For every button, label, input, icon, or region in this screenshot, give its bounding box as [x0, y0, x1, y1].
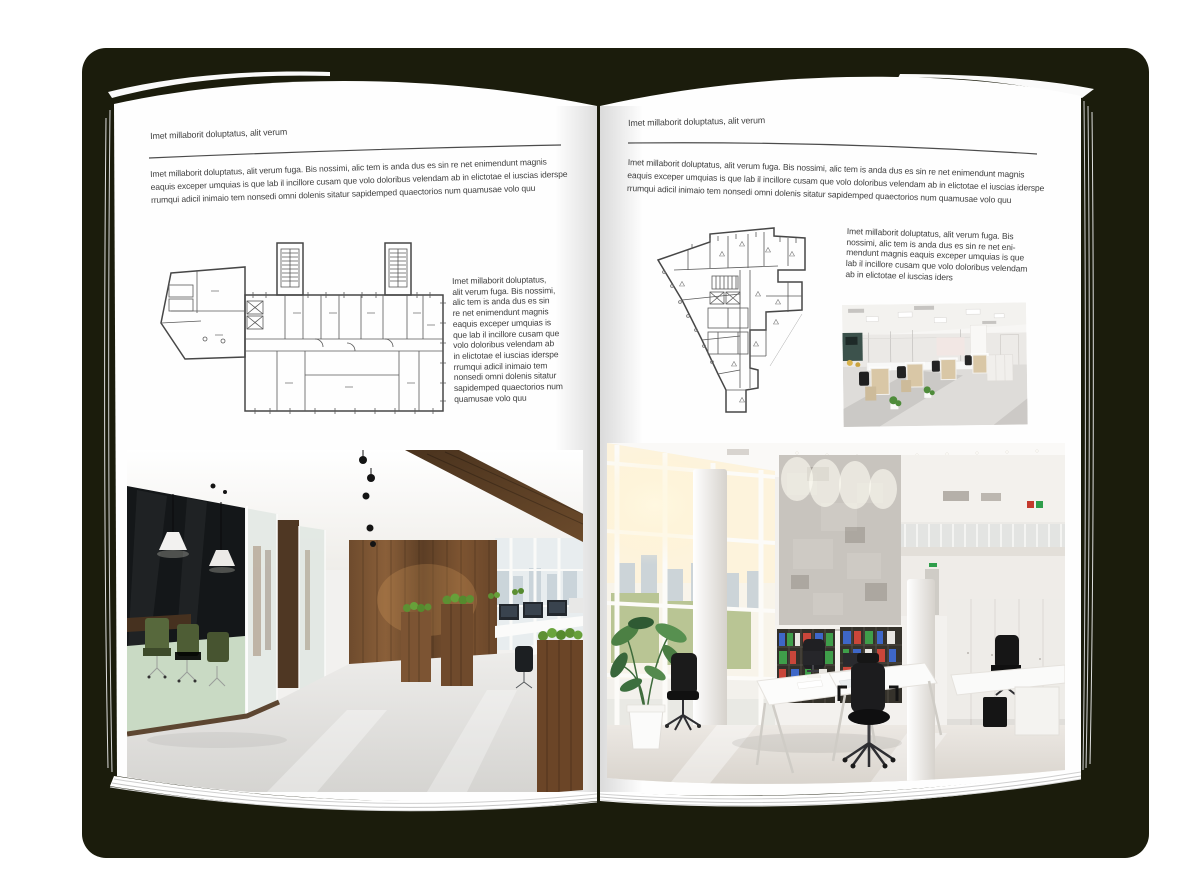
right-page-side-column: Imet millaborit doluptatus, alit verum f…	[845, 226, 1028, 285]
text-line: sapidemped quaectorios num	[454, 381, 563, 394]
exit-sign-icon	[1036, 501, 1043, 508]
photo-dark-office	[127, 450, 583, 792]
photo-cubicle-office	[842, 302, 1028, 427]
left-page-side-column: Imet millaborit doluptatus, alit verum f…	[452, 274, 563, 404]
fire-sign-icon	[1027, 501, 1034, 508]
text-line: quamusae volo quu	[454, 392, 563, 405]
concrete-wall	[779, 455, 901, 631]
brochure-mockup: Imet millaborit doluptatus, alit verum I…	[0, 0, 1200, 891]
photo-white-atrium-office	[575, 443, 1065, 787]
